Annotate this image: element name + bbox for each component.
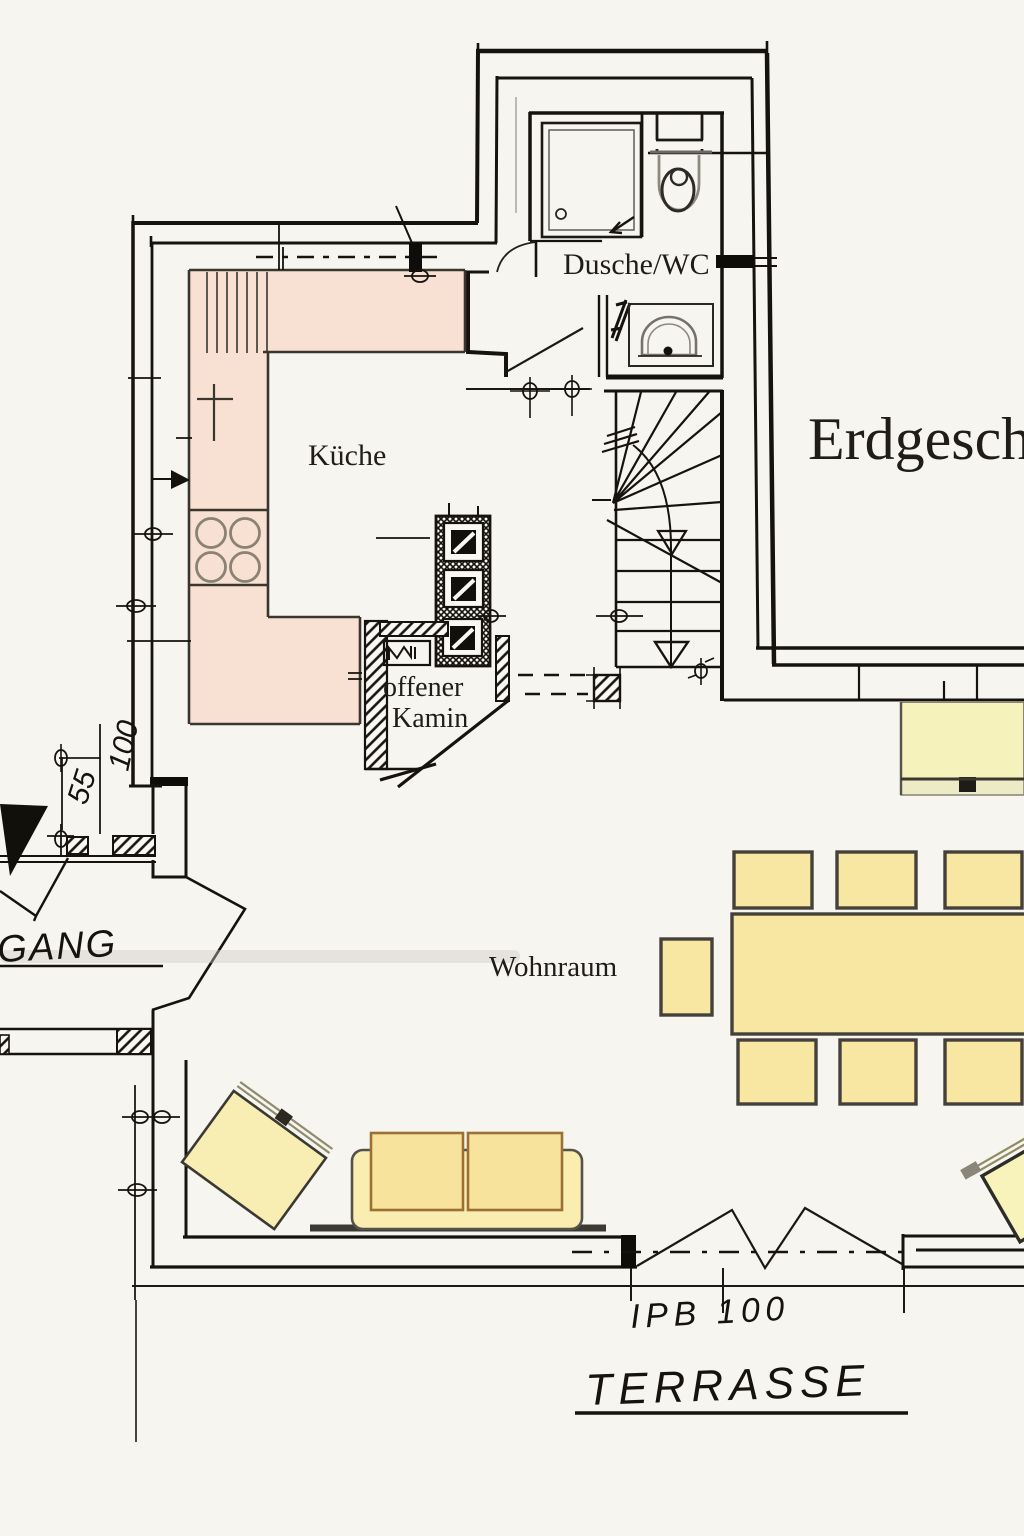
- svg-text:Erdgescho: Erdgescho: [808, 406, 1024, 472]
- svg-text:TERRASSE: TERRASSE: [585, 1356, 872, 1415]
- svg-text:GANG: GANG: [0, 923, 118, 971]
- svg-text:Wohnraum: Wohnraum: [489, 951, 618, 983]
- svg-text:offener: offener: [383, 672, 464, 703]
- svg-text:Kamin: Kamin: [392, 703, 468, 734]
- svg-text:Dusche/WC: Dusche/WC: [563, 248, 710, 281]
- svg-text:Küche: Küche: [308, 439, 386, 472]
